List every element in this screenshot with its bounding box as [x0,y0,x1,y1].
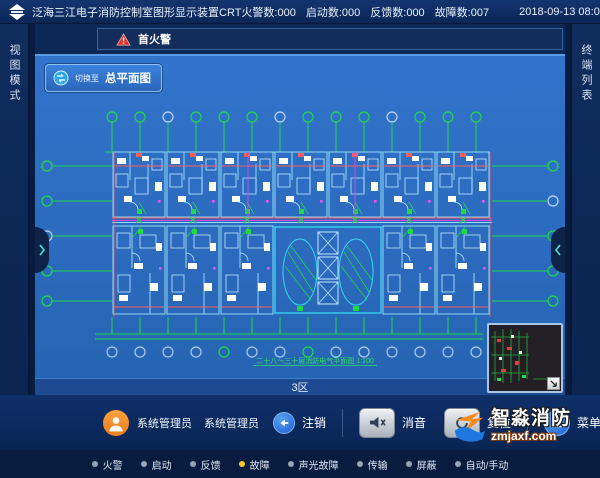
user-avatar [103,410,129,436]
legend-item-fire: 火警 [92,457,123,472]
legend-label: 反馈 [201,457,221,472]
legend-item-start: 启动 [141,457,172,472]
chevron-left-icon [554,244,562,256]
mute-label: 消音 [402,414,426,431]
app-title: 泛海三江电子消防控制室图形显示装置CRT [32,4,241,20]
sidebar-view-mode-label: 视图模式 [6,44,22,395]
zone-bar: 3区 [35,378,565,395]
map-viewport[interactable]: 二十八～三十层消防电气平面图 1:100 切换至 总平面图 [35,54,565,395]
counter-fire: 火警数:000 [241,4,295,20]
legend-dot [288,461,294,467]
minimap[interactable] [487,323,563,393]
legend-dot [406,461,412,467]
diagonal-arrow-icon [549,379,558,388]
back-arrow-icon [278,417,290,429]
legend-label: 故障 [250,457,270,472]
legend-dot [357,461,363,467]
footer-toolbar: 系统管理员 系统管理员 注销 消音 复位 菜单 [0,395,600,450]
switch-to-master-plan-button[interactable]: 切换至 总平面图 [45,64,162,92]
reset-label: 复位 [487,414,511,431]
legend-item-transmission: 传输 [357,457,388,472]
user-name: 系统管理员 [204,415,259,431]
datetime: 2018-09-13 08:06:54 [519,6,600,18]
person-icon [106,413,126,433]
menu-label: 菜单 [577,414,600,431]
right-panel-expand-handle[interactable] [551,227,565,273]
counter-start: 启动数:000 [306,4,360,20]
legend-item-auto-manual: 自动/手动 [455,457,509,472]
switch-prefix: 切换至 [75,73,99,84]
first-fire-alarm-label: 首火警 [138,31,171,47]
legend-label: 屏蔽 [417,457,437,472]
user-role: 系统管理员 [137,415,192,431]
switch-target-label: 总平面图 [105,70,151,86]
divider [342,409,343,437]
counter-feedback: 反馈数:000 [370,4,424,20]
legend-label: 传输 [368,457,388,472]
left-panel-expand-handle[interactable] [35,227,49,273]
floor-plan-canvas[interactable]: 二十八～三十层消防电气平面图 1:100 [35,56,565,380]
minimap-expand-button[interactable] [547,377,560,390]
warning-triangle-icon [116,33,131,46]
logout-button[interactable] [273,412,295,434]
legend-dot [141,461,147,467]
legend-dot [239,461,245,467]
counter-fault: 故障数:007 [435,4,489,20]
legend-dot [455,461,461,467]
speaker-mute-icon [368,415,387,430]
legend-label: 火警 [103,457,123,472]
divider [527,409,528,437]
menu-list-icon [550,416,564,429]
brand-logo-icon [8,4,26,20]
plan-caption: 二十八～三十层消防电气平面图 1:100 [256,356,374,365]
reset-button[interactable] [444,408,480,438]
legend-dot [190,461,196,467]
sidebar-terminal-list[interactable]: 终端列表 [570,24,600,395]
legend-label: 自动/手动 [466,457,509,472]
core-stairs-elevators [275,227,381,313]
status-legend: 火警 启动 反馈 故障 声光故障 传输 屏蔽 自动/手动 [0,450,600,478]
chevron-right-icon [38,244,46,256]
legend-item-feedback: 反馈 [190,457,221,472]
top-bar: 泛海三江电子消防控制室图形显示装置CRT 火警数:000 启动数:000 反馈数… [0,0,600,24]
legend-dot [92,461,98,467]
reset-cycle-icon [454,415,470,431]
zone-label: 3区 [291,379,308,395]
legend-item-sound-light-fault: 声光故障 [288,457,339,472]
first-fire-alarm-tab[interactable]: 首火警 [97,28,563,50]
legend-item-fault: 故障 [239,457,270,472]
alarm-tab-strip: 首火警 [35,24,565,54]
status-counters: 火警数:000 启动数:000 反馈数:000 故障数:007 [241,4,489,20]
center-panel: 首火警 [30,24,570,395]
sidebar-view-mode[interactable]: 视图模式 [0,24,30,395]
logout-label: 注销 [302,414,326,431]
mute-button[interactable] [359,408,395,438]
sidebar-terminal-list-label: 终端列表 [578,44,594,395]
legend-label: 声光故障 [299,457,339,472]
swap-icon [53,70,69,86]
legend-item-shield: 屏蔽 [406,457,437,472]
main-row: 视图模式 首火警 [0,24,600,395]
menu-button[interactable] [544,410,570,436]
legend-label: 启动 [152,457,172,472]
